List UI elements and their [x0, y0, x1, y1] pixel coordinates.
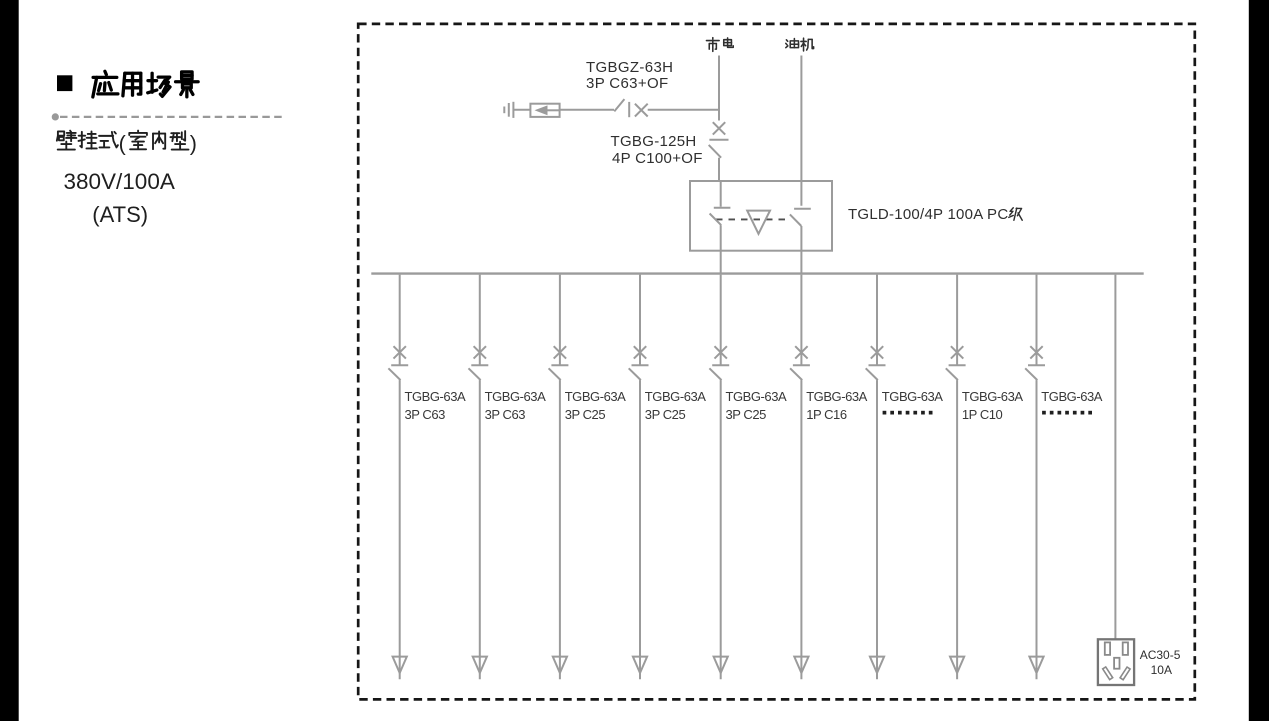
- svg-text:TGBG-63A: TGBG-63A: [726, 389, 787, 404]
- svg-text:TGBG-63A: TGBG-63A: [565, 389, 626, 404]
- svg-text:3P C63+OF: 3P C63+OF: [586, 75, 669, 92]
- svg-text:1P C10: 1P C10: [962, 407, 1003, 422]
- svg-text:10A: 10A: [1151, 663, 1172, 677]
- svg-text:TGBG-63A: TGBG-63A: [645, 389, 706, 404]
- svg-text:TGBGZ-63H: TGBGZ-63H: [586, 59, 673, 76]
- svg-text:TGBG-63A: TGBG-63A: [806, 389, 867, 404]
- svg-text:AC30-5: AC30-5: [1140, 648, 1181, 662]
- svg-text:3P C63: 3P C63: [485, 407, 526, 422]
- svg-text:TGLD-100/4P 100A PC: TGLD-100/4P 100A PC: [848, 206, 1008, 223]
- svg-text:4P C100+OF: 4P C100+OF: [612, 150, 703, 167]
- svg-text:TGBG-63A: TGBG-63A: [882, 389, 943, 404]
- svg-text:TGBG-63A: TGBG-63A: [405, 389, 466, 404]
- svg-text:TGBG-63A: TGBG-63A: [962, 389, 1023, 404]
- svg-text:(ATS): (ATS): [92, 202, 148, 227]
- svg-text:TGBG-125H: TGBG-125H: [611, 133, 697, 150]
- svg-text:TGBG-63A: TGBG-63A: [1041, 389, 1102, 404]
- svg-text:380V/100A: 380V/100A: [64, 169, 175, 194]
- svg-text:1P C16: 1P C16: [806, 407, 847, 422]
- svg-text:(: (: [119, 131, 127, 155]
- svg-text:3P C63: 3P C63: [405, 407, 446, 422]
- svg-text:3P C25: 3P C25: [645, 407, 686, 422]
- svg-text:TGBG-63A: TGBG-63A: [485, 389, 546, 404]
- svg-text:3P C25: 3P C25: [565, 407, 606, 422]
- svg-text:): ): [190, 131, 197, 155]
- svg-text:3P C25: 3P C25: [726, 407, 767, 422]
